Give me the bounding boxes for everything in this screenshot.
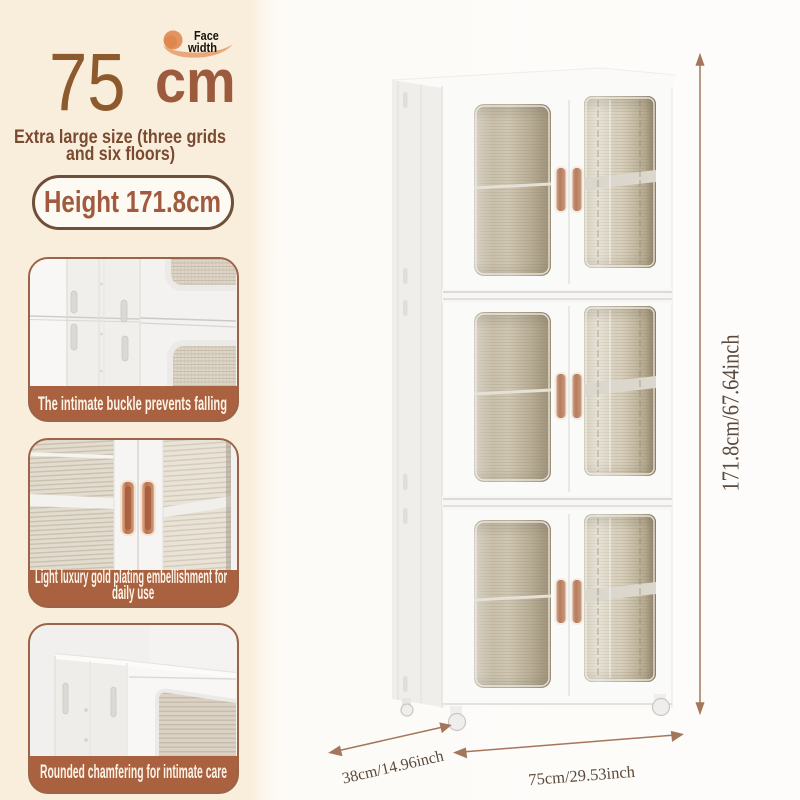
svg-text:38cm/14.96inch: 38cm/14.96inch [341, 748, 446, 788]
svg-text:171.8cm/67.64inch: 171.8cm/67.64inch [719, 335, 745, 492]
svg-text:75cm/29.53inch: 75cm/29.53inch [528, 762, 637, 789]
